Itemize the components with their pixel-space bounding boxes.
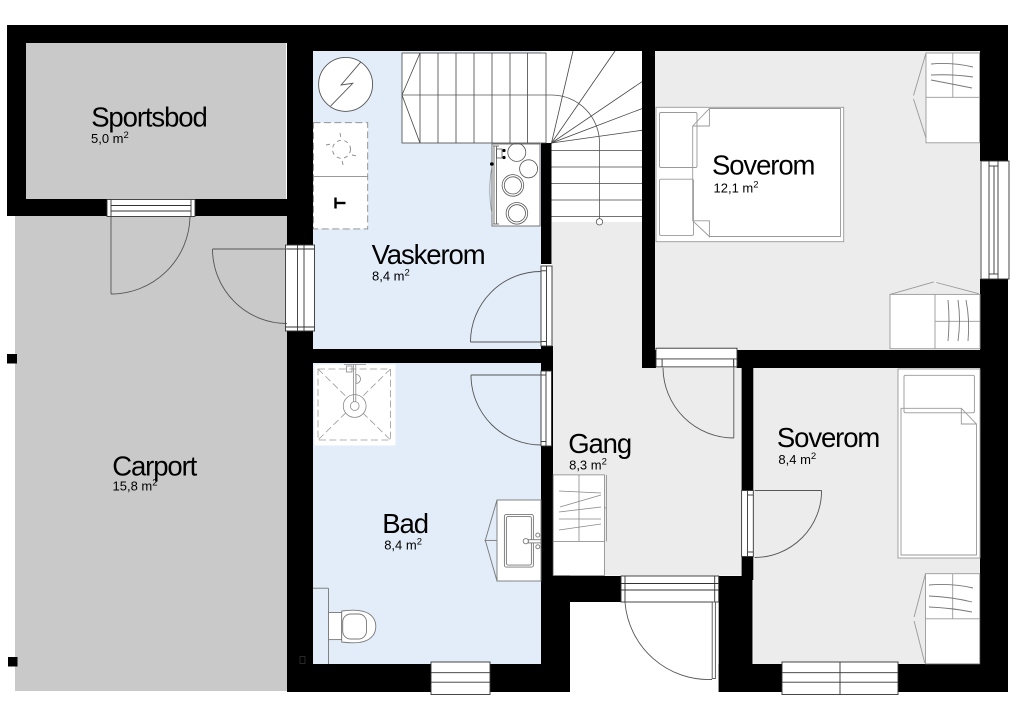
svg-text:5,0 m2: 5,0 m2 xyxy=(91,130,129,147)
svg-text:Soverom: Soverom xyxy=(777,422,880,453)
svg-text:12,1 m2: 12,1 m2 xyxy=(714,179,759,196)
svg-text:8,4 m2: 8,4 m2 xyxy=(384,536,422,553)
svg-text:Vaskerom: Vaskerom xyxy=(372,239,485,270)
svg-text:8,4 m2: 8,4 m2 xyxy=(372,267,410,284)
svg-text:8,4 m2: 8,4 m2 xyxy=(778,451,816,468)
svg-text:Gang: Gang xyxy=(568,428,631,459)
svg-text:15,8 m2: 15,8 m2 xyxy=(113,477,158,494)
svg-text:Sportsbod: Sportsbod xyxy=(91,101,206,132)
svg-text:8,3 m2: 8,3 m2 xyxy=(569,456,607,473)
svg-text:Bad: Bad xyxy=(382,508,428,539)
svg-text:Soverom: Soverom xyxy=(712,150,815,181)
